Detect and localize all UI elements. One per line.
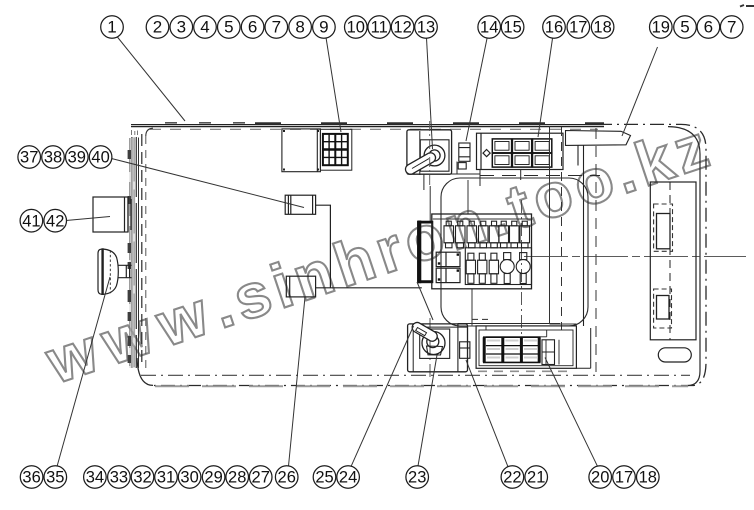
svg-text:7: 7: [272, 18, 281, 37]
svg-text:21: 21: [527, 469, 545, 487]
svg-text:30: 30: [180, 469, 198, 487]
svg-text:25: 25: [315, 469, 333, 487]
svg-text:34: 34: [86, 469, 104, 487]
svg-text:5: 5: [680, 18, 689, 37]
svg-text:16: 16: [545, 19, 563, 37]
svg-text:2: 2: [153, 18, 162, 37]
svg-text:35: 35: [46, 469, 64, 487]
svg-text:19: 19: [652, 19, 670, 37]
svg-text:15: 15: [503, 19, 521, 37]
svg-text:27: 27: [252, 469, 270, 487]
svg-text:7: 7: [727, 18, 736, 37]
svg-text:28: 28: [228, 469, 246, 487]
svg-text:11: 11: [371, 19, 388, 37]
svg-text:23: 23: [408, 469, 426, 487]
svg-text:14: 14: [480, 19, 498, 37]
svg-text:8: 8: [295, 18, 304, 37]
svg-text:17: 17: [615, 469, 633, 487]
svg-text:6: 6: [704, 18, 713, 37]
svg-text:40: 40: [91, 149, 109, 167]
svg-text:18: 18: [593, 19, 611, 37]
svg-text:29: 29: [204, 469, 222, 487]
svg-text:18: 18: [639, 469, 657, 487]
svg-text:12: 12: [393, 19, 411, 37]
svg-text:36: 36: [22, 469, 40, 487]
svg-text:20: 20: [591, 469, 609, 487]
svg-text:1: 1: [107, 18, 116, 37]
svg-text:38: 38: [44, 149, 62, 167]
svg-text:6: 6: [248, 18, 257, 37]
svg-text:42: 42: [46, 212, 64, 230]
svg-text:24: 24: [339, 469, 357, 487]
svg-text:39: 39: [68, 149, 86, 167]
svg-text:37: 37: [20, 149, 38, 167]
svg-text:9: 9: [319, 18, 328, 37]
svg-text:17: 17: [569, 19, 587, 37]
svg-text:31: 31: [157, 469, 175, 487]
svg-text:4: 4: [200, 18, 209, 37]
svg-text:3: 3: [177, 18, 186, 37]
svg-text:26: 26: [278, 469, 296, 487]
svg-text:33: 33: [110, 469, 128, 487]
svg-text:13: 13: [417, 19, 435, 37]
svg-text:32: 32: [133, 469, 151, 487]
svg-text:22: 22: [503, 469, 521, 487]
svg-text:10: 10: [347, 19, 365, 37]
svg-text:5: 5: [224, 18, 233, 37]
svg-text:41: 41: [22, 212, 40, 230]
